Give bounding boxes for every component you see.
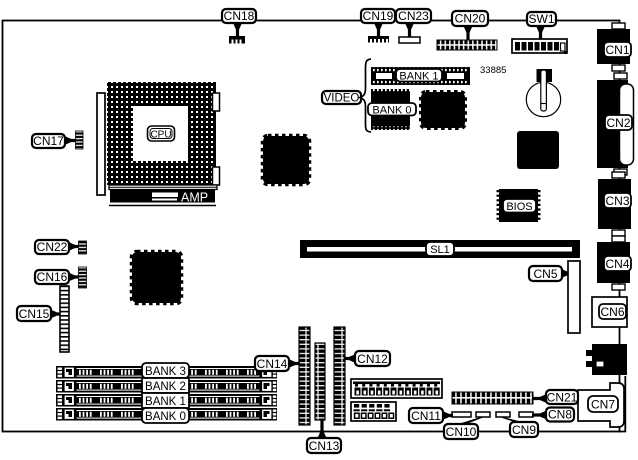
svg-text:CN6: CN6 bbox=[600, 305, 624, 319]
svg-text:BANK 0: BANK 0 bbox=[372, 105, 411, 117]
svg-text:BANK 1: BANK 1 bbox=[399, 71, 438, 83]
svg-text:CN9: CN9 bbox=[512, 423, 536, 437]
svg-text:AMP: AMP bbox=[181, 191, 208, 205]
svg-text:CN12: CN12 bbox=[357, 352, 388, 366]
svg-text:CN16: CN16 bbox=[37, 270, 68, 284]
svg-text:CN18: CN18 bbox=[224, 9, 255, 23]
svg-text:CN13: CN13 bbox=[309, 439, 340, 453]
svg-text:CPU: CPU bbox=[150, 130, 171, 141]
svg-text:CN23: CN23 bbox=[398, 9, 429, 23]
svg-text:CN21: CN21 bbox=[547, 391, 578, 405]
svg-text:CN14: CN14 bbox=[257, 357, 288, 371]
svg-text:33885: 33885 bbox=[480, 65, 506, 76]
svg-text:SW1: SW1 bbox=[528, 12, 554, 26]
svg-text:BANK 0: BANK 0 bbox=[145, 411, 186, 423]
svg-text:BANK 1: BANK 1 bbox=[145, 396, 186, 408]
svg-text:BANK 3: BANK 3 bbox=[145, 366, 186, 378]
svg-text:CN1: CN1 bbox=[605, 43, 629, 57]
svg-text:CN5: CN5 bbox=[533, 267, 557, 281]
svg-text:CN2: CN2 bbox=[606, 116, 630, 130]
svg-text:CN19: CN19 bbox=[363, 9, 394, 23]
svg-text:SL1: SL1 bbox=[430, 244, 450, 256]
svg-text:CN22: CN22 bbox=[37, 240, 68, 254]
svg-text:CN10: CN10 bbox=[446, 425, 477, 439]
svg-text:CN7: CN7 bbox=[591, 398, 615, 412]
svg-text:CN8: CN8 bbox=[548, 408, 572, 422]
svg-text:CN11: CN11 bbox=[411, 409, 441, 423]
svg-text:CN4: CN4 bbox=[605, 257, 629, 271]
svg-text:CN15: CN15 bbox=[19, 307, 50, 321]
svg-text:CN17: CN17 bbox=[33, 134, 64, 148]
svg-text:BANK 2: BANK 2 bbox=[145, 381, 186, 393]
svg-text:BIOS: BIOS bbox=[506, 201, 532, 213]
svg-text:CN3: CN3 bbox=[605, 194, 629, 208]
svg-text:VIDEO: VIDEO bbox=[324, 93, 360, 105]
svg-text:CN20: CN20 bbox=[455, 12, 486, 26]
